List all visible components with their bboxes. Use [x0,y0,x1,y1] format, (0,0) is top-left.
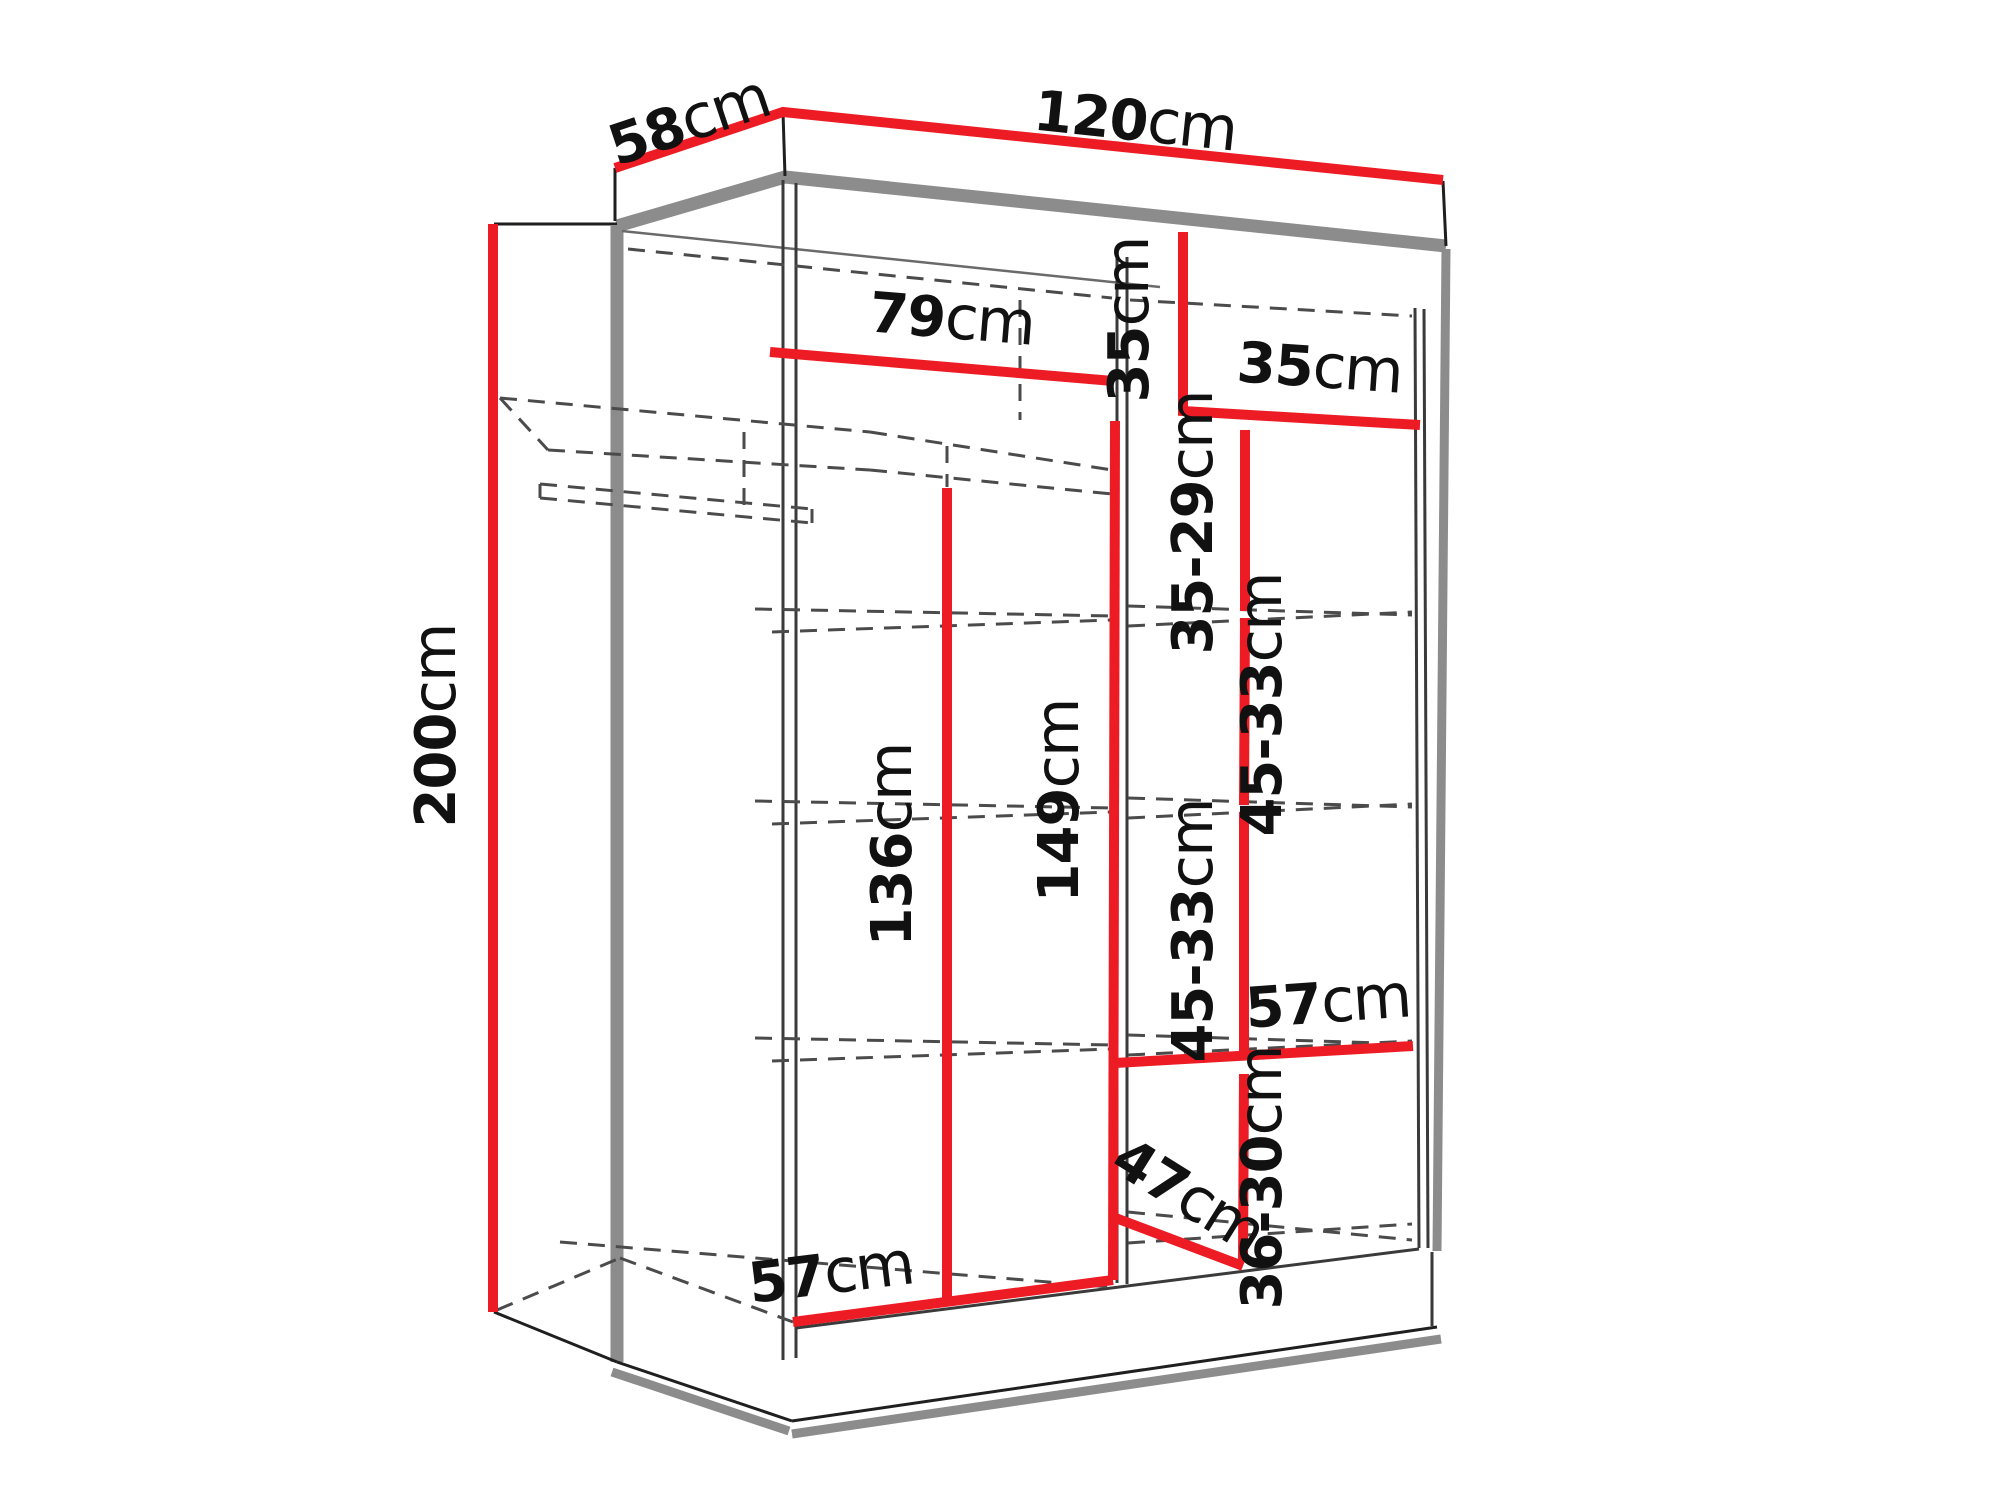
hanging-rod-top [540,484,812,509]
back-wall-top-edge [622,231,1160,287]
bottom-front-shadow [792,1339,1441,1434]
crown-apex-edge [783,112,785,176]
bottom-left-shadow [612,1372,789,1431]
dim-line-149 [1113,421,1115,1280]
dim-label-top-shelf-height: 35cm [1092,238,1163,403]
dim-label-right-gap-3: 45-33cm [1156,799,1227,1062]
crown-bottom-edges [617,177,1446,246]
dim-label-width: 120cm [1031,74,1240,166]
shelf3-left-a [755,1038,1112,1045]
dashed-top-shelf-front [548,450,870,470]
bottom-back-left-edge [494,1312,617,1362]
right-outer-edge [1437,249,1446,1251]
dim-label-height: 200cm [399,625,470,828]
dim-label-right-gap-1: 35-29cm [1156,391,1227,654]
dim-label-right-gap-4: 36-30cm [1225,1046,1296,1309]
dim-label-hanging-height: 136cm [855,744,926,947]
floor-left-diag-a [497,1258,620,1310]
dashed-top-shelf-back [500,398,870,432]
hanging-rod-bottom [540,498,812,523]
crown-right-corner-edge [1443,181,1446,246]
dim-label-right-section-width: 35cm [1235,325,1404,407]
dashed-top-shelf-front2 [870,470,1112,494]
dashed-top-shelf-back2 [870,432,1112,470]
dim-label-left-section-width: 79cm [867,275,1037,359]
dim-label-right-gap-2: 45-33cm [1225,573,1296,836]
right-interior-edge-a [1415,308,1419,1248]
bottom-left-edge [617,1362,792,1421]
dim-label-depth: 58cm [599,61,778,181]
dashed-top-front-right [1130,300,1412,316]
dashed-top-shelf-side [500,398,548,450]
dim-label-divider-height: 149cm [1022,700,1093,903]
right-interior-edge-b [1424,309,1428,1248]
shelf1-left-a [755,609,1112,616]
dim-label-right-shelf-width: 57cm [1243,960,1412,1042]
bottom-front-edge [792,1327,1437,1421]
dim-line-79 [770,352,1113,381]
diagram-canvas: 58cm 120cm 200cm 79cm 35cm 35cm 35-29cm … [0,0,2000,1500]
dimension-labels: 58cm 120cm 200cm 79cm 35cm 35cm 35-29cm … [399,61,1412,1318]
wardrobe-dimension-diagram: 58cm 120cm 200cm 79cm 35cm 35cm 35-29cm … [0,0,2000,1500]
